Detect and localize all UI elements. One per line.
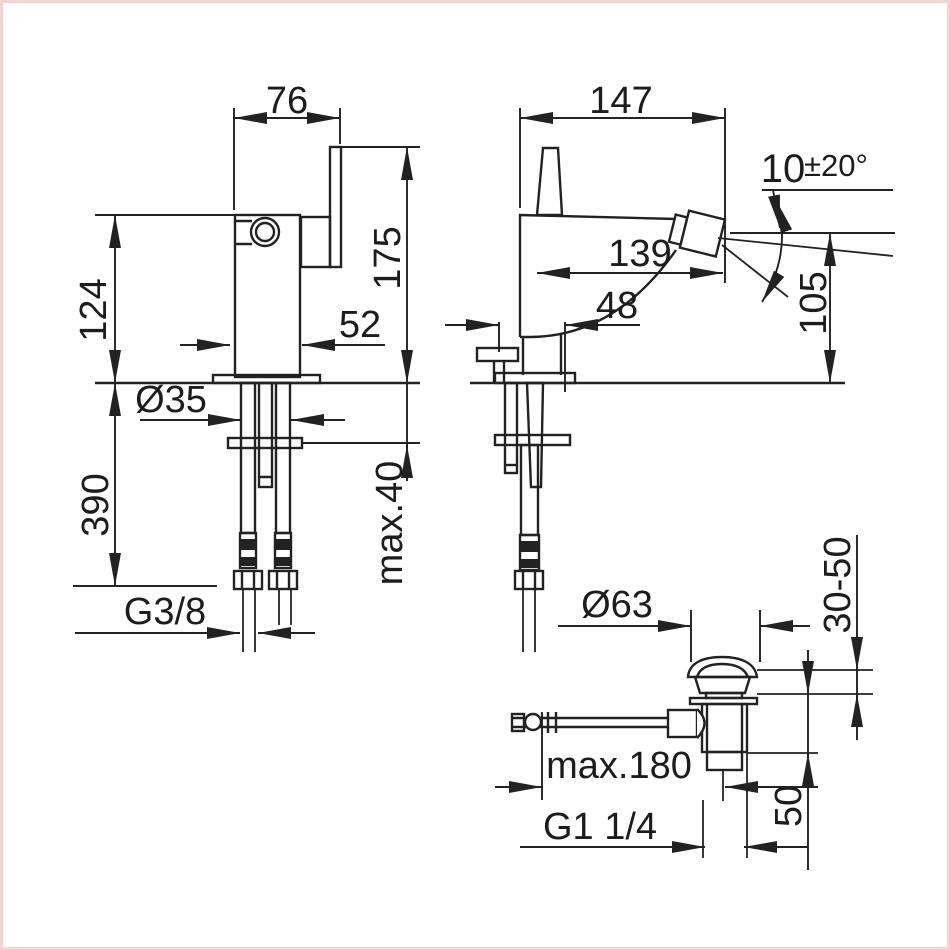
dim-label-rod-length: max.180 [546,745,692,787]
rod-ball-end [525,714,541,730]
angle-line-nominal [718,238,893,256]
dimension-waste-thread: G1 1/4 [520,806,807,848]
aerator-tip [680,211,725,257]
dim-label-body-height: 124 [73,278,115,341]
rod-knuckle-joint [697,709,705,738]
dimension-deck-thickness: max.40 [302,383,420,585]
rod-knuckle [668,710,697,737]
aerator-tip-group [668,208,725,257]
dim-label-flange-to-tail: 50 [768,785,810,827]
popup-knob [477,348,518,361]
dim-label-angle-base: 10 [761,147,806,191]
popup-cap-neck [695,677,750,693]
dimension-cap-diameter: Ø63 [558,584,810,662]
mounting-stud-side [505,383,517,473]
hex-nut-side [515,571,543,589]
popup-cap-inner-curve [697,664,748,677]
dim-label-cap-diameter: Ø63 [581,584,653,626]
technical-drawing: 76 124 390 175 max.40 52 Ø35 G3/8 [0,0,950,950]
dim-label-total-height: 175 [367,226,409,289]
hex-nut-facets [242,571,254,589]
hose-fitting-band [520,541,539,552]
extension-lines [234,108,340,210]
lever-handle-side [537,148,562,215]
extension-lines [691,610,760,662]
dim-label-supply-connection: G3/8 [124,591,206,633]
hex-nut-facets [523,571,535,589]
faucet-body-front [235,215,300,377]
waste-reference-lines [748,670,873,753]
thread-stub-lines [243,589,291,652]
dim-label-hose-length: 390 [75,473,117,536]
extension-lines [499,322,565,392]
dimension-body-height: 124 [73,215,235,383]
dim-label-clamping-range: 30-50 [817,536,859,633]
dimension-clamping-range: 30-50 [817,535,859,740]
dimension-flange-to-tail: 50 [768,650,810,870]
dim-label-rear-offset: 48 [596,285,638,327]
waste-body [702,704,747,752]
supply-hose-right [276,383,290,533]
dimension-front-width: 76 [234,80,340,210]
rod-adjuster-ticks [548,712,556,733]
hex-nut-left [234,571,262,589]
dimension-body-width: 52 [180,304,385,346]
dimension-rod-length: max.180 [495,712,818,800]
dim-label-spout-reach: 139 [608,233,671,275]
dim-label-shank-diameter: Ø35 [135,379,207,421]
waste-tailpipe [707,752,742,770]
dim-label-outlet-height: 105 [793,271,835,334]
hex-nut-facets [277,571,289,589]
waste-extension-lines [703,752,747,858]
side-view [470,148,845,652]
dimension-total-height: 175 [341,147,420,383]
hose-fitting-band [275,539,291,550]
dim-label-front-width: 76 [266,80,308,122]
dim-label-body-width: 52 [339,304,381,346]
hex-nut-right [269,571,297,589]
shank-lines [523,333,561,375]
dim-label-deck-thickness: max.40 [369,461,411,586]
hose-fitting-band [240,539,256,550]
rod-end-cap [512,714,524,731]
handle-boss-front [301,217,330,267]
technical-drawing-page: 76 124 390 175 max.40 52 Ø35 G3/8 [0,0,950,950]
hose-fitting-band [520,559,539,568]
dimension-rear-offset: 48 [445,285,640,392]
cartridge-cap-inner [256,223,274,241]
angle-arc [762,200,782,302]
dim-label-waste-thread: G1 1/4 [543,806,657,848]
hose-fitting-band [240,557,256,566]
dim-label-depth: 147 [589,80,652,122]
base-plate-side [495,373,575,383]
thread-stub-lines [523,589,535,652]
waste-body-inner-walls [707,704,742,752]
hose-fitting-band [275,557,291,566]
dim-label-angle-tolerance: ±20° [804,148,868,183]
dimension-outlet-height: 105 [730,233,895,383]
supply-hose-left [241,383,255,533]
angle-line-swing [722,245,788,297]
mounting-washer-side [495,435,570,445]
lever-handle-front [330,147,341,267]
mounting-stud-front [259,383,272,487]
